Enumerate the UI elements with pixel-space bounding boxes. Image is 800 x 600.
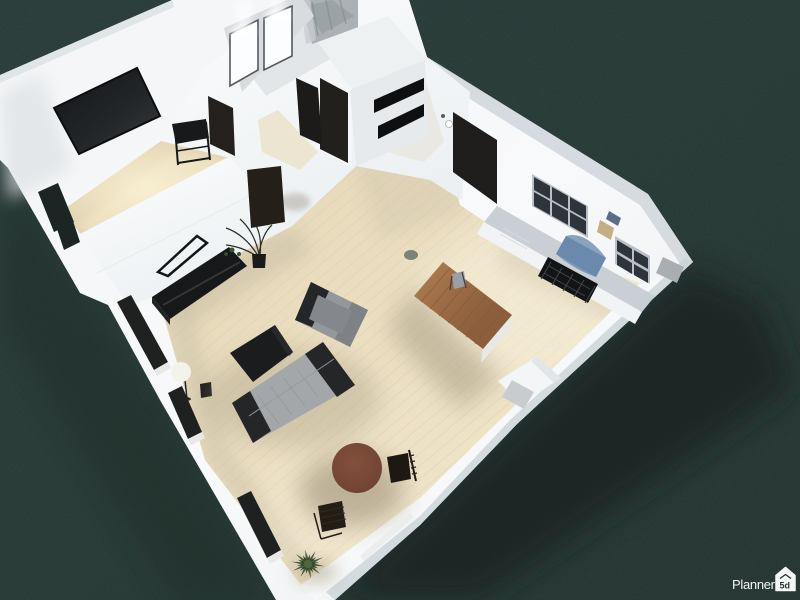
svg-text:5d: 5d (780, 581, 791, 591)
svg-text:Planner: Planner (732, 577, 776, 592)
